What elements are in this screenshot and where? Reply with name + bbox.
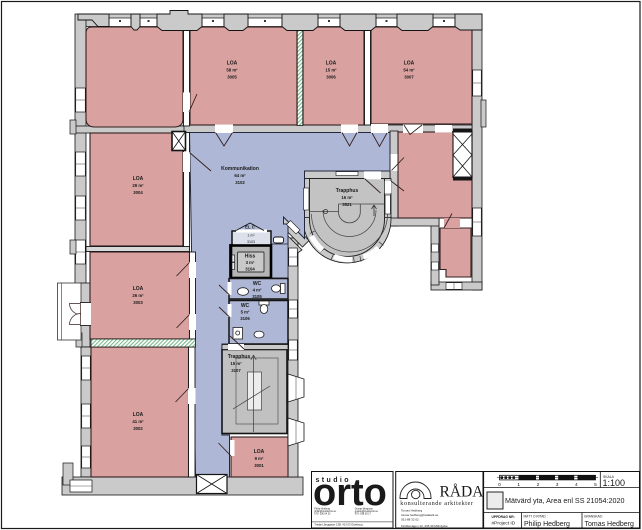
svg-text:3104: 3104 — [245, 267, 255, 272]
svg-text:Tredje Långgatan 13B, 413 03 G: Tredje Långgatan 13B, 413 03 Göteborg — [314, 522, 363, 526]
svg-text:3103: 3103 — [247, 240, 255, 244]
svg-text:EL C: EL C — [245, 225, 255, 230]
svg-text:54 m²: 54 m² — [403, 68, 415, 73]
svg-text:15 m²: 15 m² — [325, 68, 337, 73]
svg-text:3002: 3002 — [133, 426, 143, 431]
svg-text:5 m²: 5 m² — [241, 310, 250, 315]
svg-text:1 m²: 1 m² — [247, 234, 255, 238]
svg-text:Kommunikation: Kommunikation — [221, 166, 259, 172]
svg-text:LOA: LOA — [133, 412, 144, 418]
svg-text:WC: WC — [253, 281, 262, 287]
svg-text:3005: 3005 — [227, 75, 237, 80]
svg-text:1:100: 1:100 — [603, 478, 626, 488]
svg-text:3106: 3106 — [240, 316, 250, 321]
svg-text:5: 5 — [594, 482, 597, 488]
svg-text:3521: 3521 — [342, 202, 352, 207]
svg-text:LOA: LOA — [326, 61, 337, 67]
svg-text:RÅDA: RÅDA — [440, 484, 485, 501]
svg-text:3 m²: 3 m² — [246, 260, 255, 265]
svg-text:GRANSKAD:: GRANSKAD: — [584, 515, 603, 519]
svg-text:26 m²: 26 m² — [132, 293, 144, 298]
svg-text:3004: 3004 — [133, 190, 143, 195]
svg-text:LOA: LOA — [404, 61, 415, 67]
svg-text:Hiss: Hiss — [245, 254, 256, 260]
svg-text:3105: 3105 — [252, 294, 262, 299]
svg-text:3107: 3107 — [231, 368, 241, 373]
svg-text:15 m²: 15 m² — [230, 361, 242, 366]
svg-text:UPPDRAG NR:: UPPDRAG NR: — [492, 515, 515, 519]
svg-text:29 m²: 29 m² — [132, 183, 144, 188]
svg-text:073- 336 04 23: 073- 336 04 23 — [314, 513, 331, 516]
svg-text:16 m²: 16 m² — [341, 195, 353, 200]
svg-text:3001: 3001 — [254, 463, 264, 468]
svg-text:konsulterande arkitekter: konsulterande arkitekter — [400, 500, 473, 507]
svg-text:3007: 3007 — [404, 75, 414, 80]
svg-text:Tomas Hedberg: Tomas Hedberg — [585, 521, 635, 528]
svg-text:LOA: LOA — [254, 449, 265, 455]
svg-text:WC: WC — [241, 303, 250, 309]
svg-text:#Project ID: #Project ID — [492, 521, 516, 527]
svg-text:LOA: LOA — [227, 61, 238, 67]
svg-text:LOA: LOA — [133, 286, 144, 292]
svg-text:Philip Hedberg: Philip Hedberg — [524, 521, 570, 528]
svg-text:Trapphus: Trapphus — [228, 354, 251, 360]
svg-text:Tomas Hedberg: Tomas Hedberg — [401, 509, 423, 513]
svg-text:Mätvärd yta, Area enl SS 21054: Mätvärd yta, Area enl SS 21054:2020 — [505, 496, 624, 505]
svg-text:031-88 32 02: 031-88 32 02 — [401, 518, 419, 522]
svg-text:4 m²: 4 m² — [253, 288, 262, 293]
svg-text:3102: 3102 — [235, 180, 245, 185]
svg-text:58 m²: 58 m² — [226, 68, 238, 73]
svg-text:MÄTT O RITAD :: MÄTT O RITAD : — [524, 515, 548, 519]
svg-text:Trapphus: Trapphus — [336, 188, 359, 194]
svg-text:LOA: LOA — [133, 176, 144, 182]
svg-text:9 m²: 9 m² — [255, 456, 264, 461]
svg-text:0: 0 — [498, 482, 501, 488]
svg-text:64 m²: 64 m² — [234, 173, 246, 178]
svg-text:3: 3 — [556, 482, 559, 488]
svg-text:tomas.hedberg@radaark.se: tomas.hedberg@radaark.se — [401, 513, 439, 517]
svg-text:1: 1 — [517, 482, 520, 488]
svg-text:2: 2 — [537, 482, 540, 488]
svg-text:3006: 3006 — [326, 75, 336, 80]
svg-text:070- 938 28 17: 070- 938 28 17 — [355, 513, 372, 516]
svg-text:4: 4 — [575, 482, 578, 488]
svg-text:Kindbovägen 12, 435 30 Mölnly: Kindbovägen 12, 435 30 Mölnlycke — [401, 524, 448, 528]
svg-text:3003: 3003 — [133, 300, 143, 305]
svg-text:41 m²: 41 m² — [132, 419, 144, 424]
